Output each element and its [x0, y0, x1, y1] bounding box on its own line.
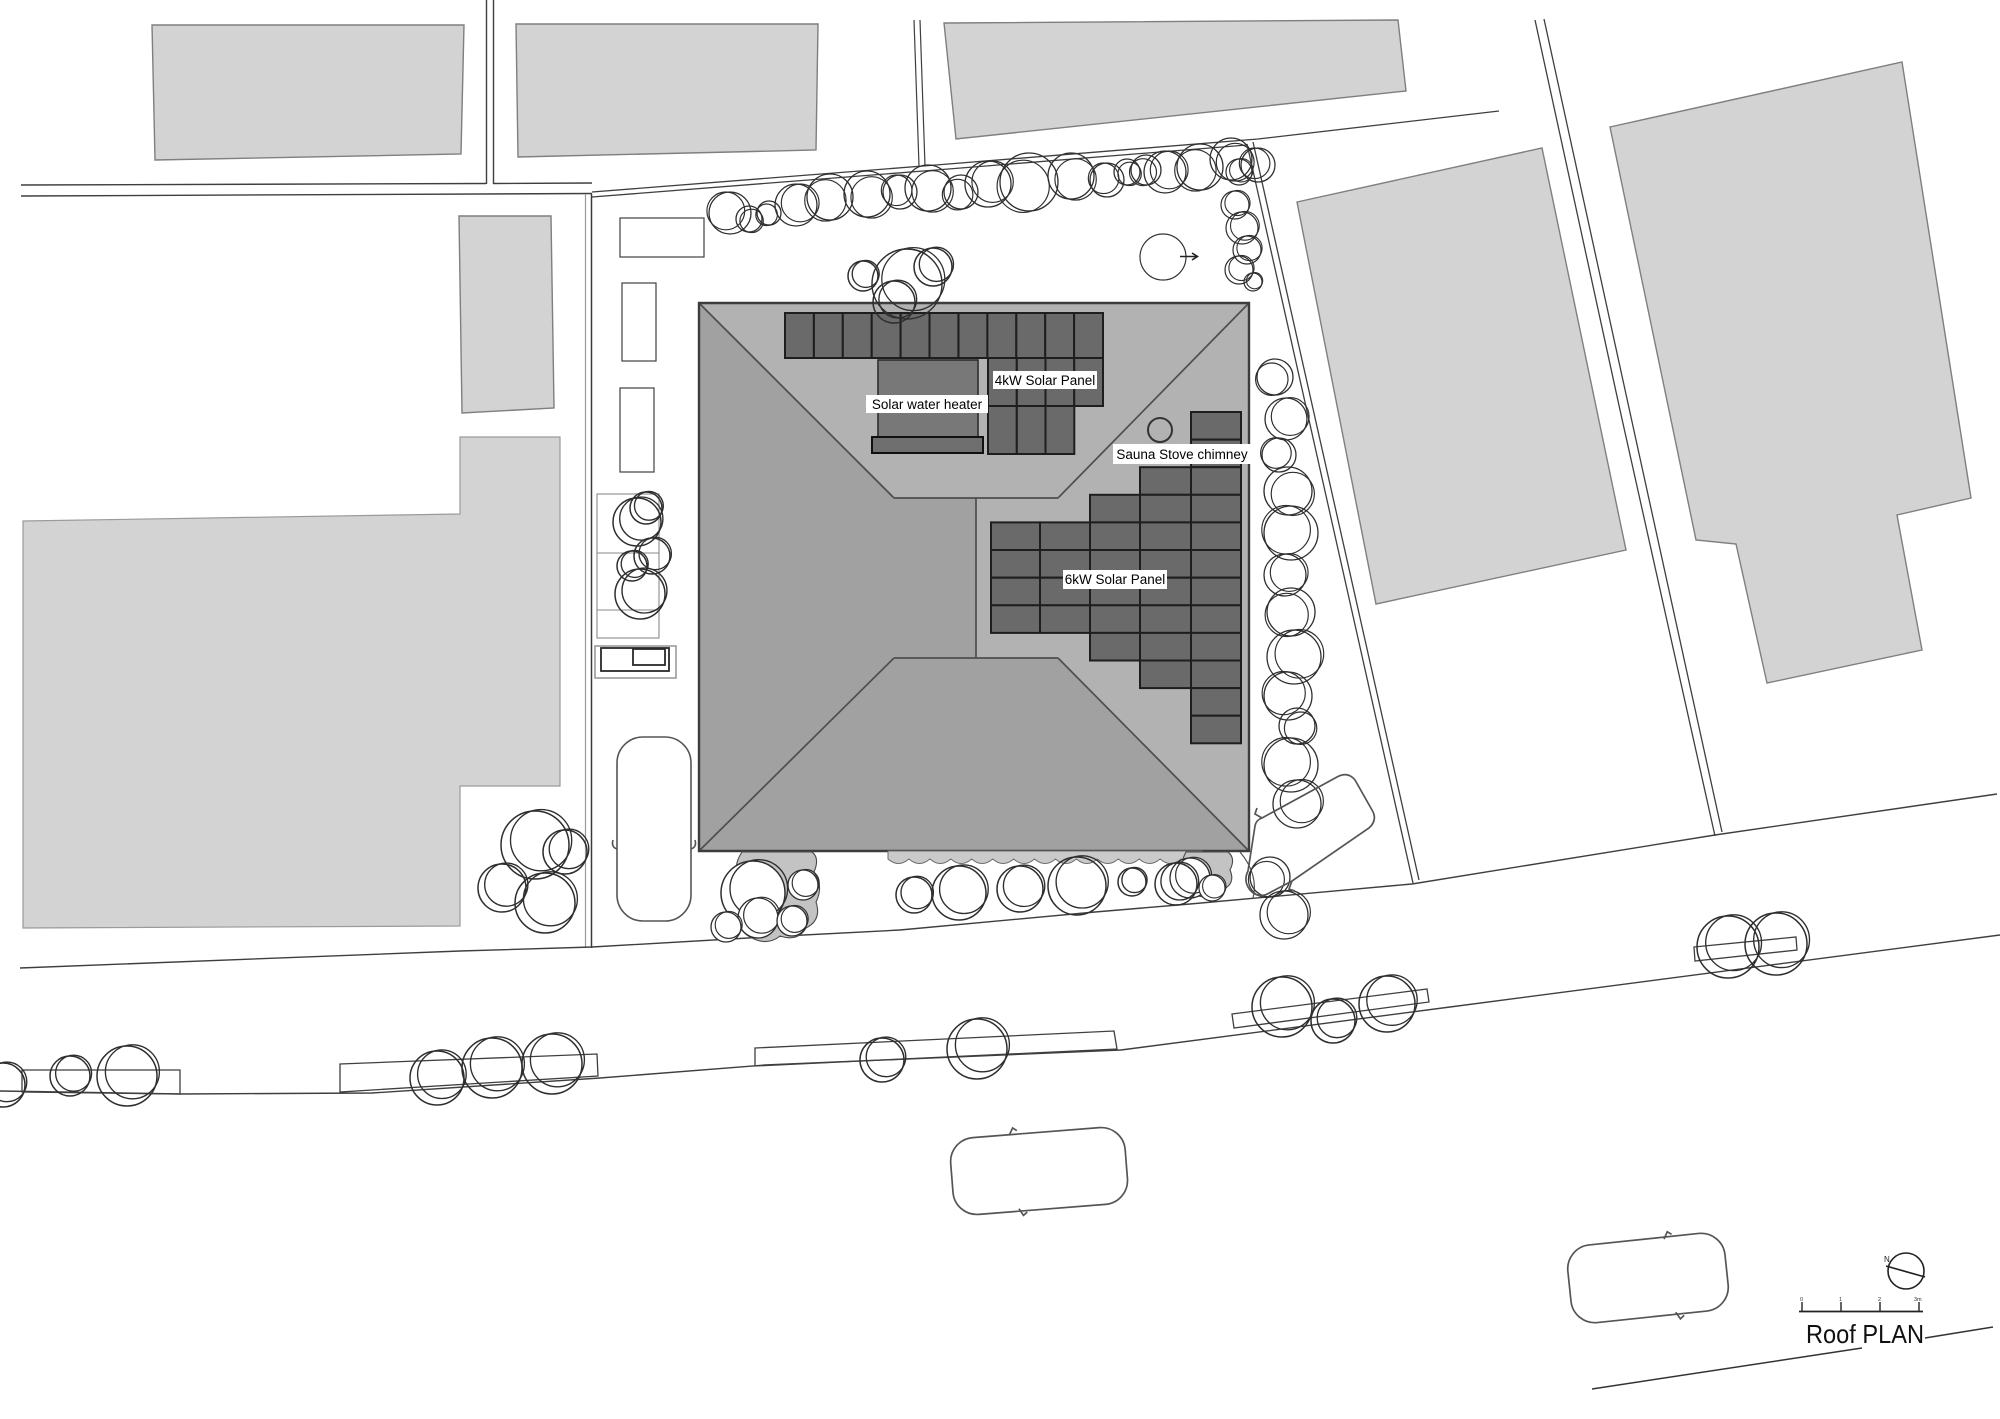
svg-text:Sauna Stove chimney: Sauna Stove chimney: [1116, 447, 1248, 462]
svg-text:0: 0: [1800, 1297, 1803, 1303]
svg-text:6kW Solar Panel: 6kW Solar Panel: [1065, 572, 1166, 587]
svg-text:N: N: [1884, 1255, 1890, 1264]
svg-text:4kW Solar Panel: 4kW Solar Panel: [995, 373, 1096, 388]
svg-text:Roof PLAN: Roof PLAN: [1806, 1319, 1924, 1349]
svg-text:2: 2: [1878, 1297, 1881, 1303]
svg-text:3m: 3m: [1914, 1297, 1922, 1303]
svg-text:Solar water heater: Solar water heater: [872, 397, 983, 412]
svg-text:1: 1: [1839, 1297, 1842, 1303]
